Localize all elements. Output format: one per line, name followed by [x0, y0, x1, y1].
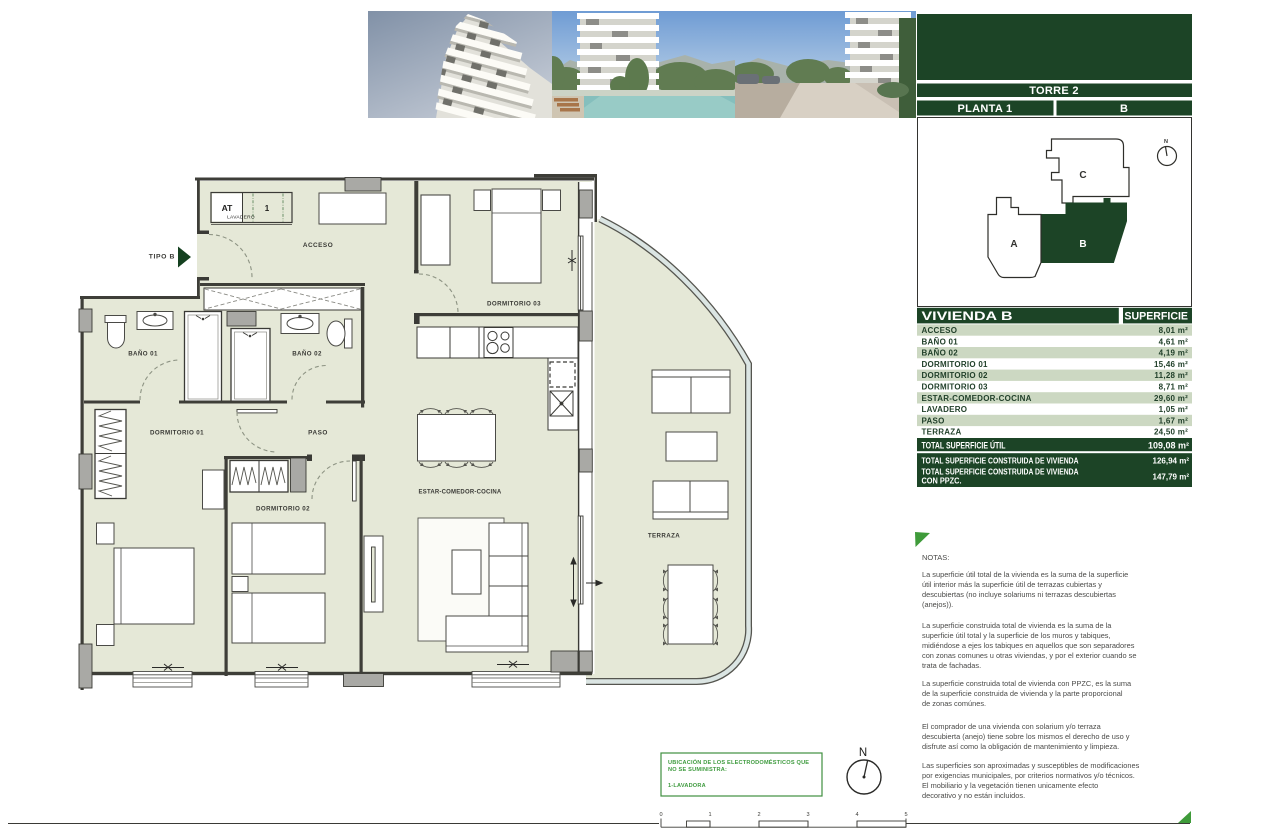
svg-text:DORMITORIO 01: DORMITORIO 01	[150, 430, 204, 437]
svg-text:decorativo y no están incluido: decorativo y no están incluidos.	[922, 791, 1025, 800]
svg-text:A: A	[1010, 239, 1017, 250]
svg-text:de la superficie construida de: de la superficie construida de vivienda …	[922, 689, 1123, 698]
svg-text:C: C	[1079, 170, 1086, 181]
svg-text:29,60 m²: 29,60 m²	[1154, 394, 1188, 403]
svg-text:147,79 m²: 147,79 m²	[1153, 473, 1190, 482]
svg-text:1,67 m²: 1,67 m²	[1159, 416, 1188, 425]
svg-text:LAVADERO: LAVADERO	[227, 215, 255, 221]
svg-text:B: B	[1120, 103, 1128, 115]
svg-text:superficie útil total y la sup: superficie útil total y la superficie de…	[922, 631, 1111, 640]
svg-text:109,08 m²: 109,08 m²	[1148, 440, 1189, 450]
svg-text:El comprador de una vivienda c: El comprador de una vivienda con solariu…	[922, 722, 1102, 731]
svg-text:1-LAVADORA: 1-LAVADORA	[668, 783, 706, 789]
svg-text:El mobiliario y la vegetación: El mobiliario y la vegetación tienen uni…	[922, 781, 1098, 790]
svg-text:descubiertas (no incluye solar: descubiertas (no incluye solariums ni te…	[922, 590, 1116, 599]
svg-text:NOTAS:: NOTAS:	[922, 553, 949, 562]
svg-text:descubierta (anejo) tiene sobr: descubierta (anejo) tiene sobre los mism…	[922, 732, 1130, 741]
svg-text:1: 1	[708, 812, 711, 818]
svg-text:ESTAR-COMEDOR-COCINA: ESTAR-COMEDOR-COCINA	[922, 394, 1032, 403]
svg-text:ACCESO: ACCESO	[922, 326, 958, 335]
svg-text:8,71 m²: 8,71 m²	[1159, 383, 1188, 392]
svg-text:4,61 m²: 4,61 m²	[1159, 337, 1188, 346]
svg-text:CON PPZC.: CON PPZC.	[922, 477, 962, 486]
svg-text:TORRE 2: TORRE 2	[1029, 85, 1079, 97]
svg-text:DORMITORIO 01: DORMITORIO 01	[922, 360, 989, 369]
svg-text:La superficie construida total: La superficie construida total de vivien…	[922, 621, 1112, 630]
svg-text:BAÑO 02: BAÑO 02	[292, 351, 322, 358]
svg-text:1,05 m²: 1,05 m²	[1159, 405, 1188, 414]
svg-text:AT: AT	[222, 203, 234, 213]
svg-text:4,19 m²: 4,19 m²	[1159, 349, 1188, 358]
svg-text:ESTAR-COMEDOR-COCINA: ESTAR-COMEDOR-COCINA	[419, 490, 502, 496]
svg-text:B: B	[1079, 239, 1086, 250]
svg-text:(anejos)).: (anejos)).	[922, 600, 953, 609]
svg-text:8,01 m²: 8,01 m²	[1159, 326, 1188, 335]
svg-text:4: 4	[855, 812, 858, 818]
svg-text:La superficie útil total de la: La superficie útil total de la vivienda …	[922, 570, 1128, 579]
svg-text:2: 2	[757, 812, 760, 818]
svg-text:5: 5	[904, 812, 907, 818]
svg-text:La superficie construida total: La superficie construida total de vivien…	[922, 679, 1132, 688]
svg-text:DORMITORIO 02: DORMITORIO 02	[256, 506, 310, 513]
svg-text:PASO: PASO	[308, 430, 328, 437]
svg-text:BAÑO 01: BAÑO 01	[128, 351, 158, 358]
svg-text:Las superficies son aproximada: Las superficies son aproximadas y suscep…	[922, 761, 1140, 770]
svg-text:BAÑO 01: BAÑO 01	[922, 337, 959, 346]
svg-text:de zonas comúnes.: de zonas comúnes.	[922, 699, 986, 708]
svg-text:3: 3	[806, 812, 809, 818]
svg-text:con zonas comunes u otras vivi: con zonas comunes u otras viviendas, y p…	[922, 651, 1136, 660]
svg-text:SUPERFICIE: SUPERFICIE	[1124, 311, 1188, 323]
svg-text:disfrute así como la obligació: disfrute así como la obligación de mante…	[922, 742, 1119, 751]
svg-text:11,28 m²: 11,28 m²	[1154, 371, 1188, 380]
svg-text:0: 0	[659, 812, 662, 818]
svg-text:TERRAZA: TERRAZA	[648, 533, 680, 540]
svg-text:útil interior más la superfici: útil interior más la superficie útil de …	[922, 580, 1102, 589]
svg-text:trata de fachadas.: trata de fachadas.	[922, 661, 981, 670]
svg-text:N: N	[859, 747, 867, 759]
svg-text:por exigencias municipales, po: por exigencias municipales, por criterio…	[922, 771, 1135, 780]
svg-text:15,46 m²: 15,46 m²	[1154, 360, 1188, 369]
svg-text:PASO: PASO	[922, 416, 945, 425]
svg-text:UBICACIÓN DE LOS ELECTRODOMÉST: UBICACIÓN DE LOS ELECTRODOMÉSTICOS QUE	[668, 758, 809, 766]
svg-text:ACCESO: ACCESO	[303, 242, 333, 249]
svg-text:24,50 m²: 24,50 m²	[1154, 428, 1188, 437]
svg-text:TOTAL SUPERFICIE CONSTRUIDA DE: TOTAL SUPERFICIE CONSTRUIDA DE VIVIENDA	[922, 457, 1079, 466]
svg-text:BAÑO 02: BAÑO 02	[922, 349, 959, 358]
svg-text:VIVIENDA B: VIVIENDA B	[922, 311, 1013, 323]
svg-text:DORMITORIO 03: DORMITORIO 03	[487, 301, 541, 308]
svg-text:NO SE SUMINISTRA:: NO SE SUMINISTRA:	[668, 767, 727, 773]
svg-text:TOTAL SUPERFICIE CONSTRUIDA DE: TOTAL SUPERFICIE CONSTRUIDA DE VIVIENDA	[922, 468, 1079, 477]
svg-text:126,94 m²: 126,94 m²	[1153, 457, 1190, 466]
svg-text:PLANTA 1: PLANTA 1	[958, 103, 1013, 115]
svg-text:LAVADERO: LAVADERO	[922, 405, 968, 414]
svg-text:DORMITORIO 03: DORMITORIO 03	[922, 383, 989, 392]
svg-text:N: N	[1164, 139, 1168, 145]
svg-text:1: 1	[265, 204, 270, 213]
svg-text:TERRAZA: TERRAZA	[922, 428, 962, 437]
svg-text:TOTAL SUPERFICIE ÚTIL: TOTAL SUPERFICIE ÚTIL	[922, 439, 1006, 450]
svg-text:midiéndose a ejes los tabiques: midiéndose a ejes los tabiques en aquell…	[922, 641, 1135, 650]
svg-text:DORMITORIO 02: DORMITORIO 02	[922, 371, 989, 380]
svg-text:TIPO B: TIPO B	[149, 254, 175, 261]
